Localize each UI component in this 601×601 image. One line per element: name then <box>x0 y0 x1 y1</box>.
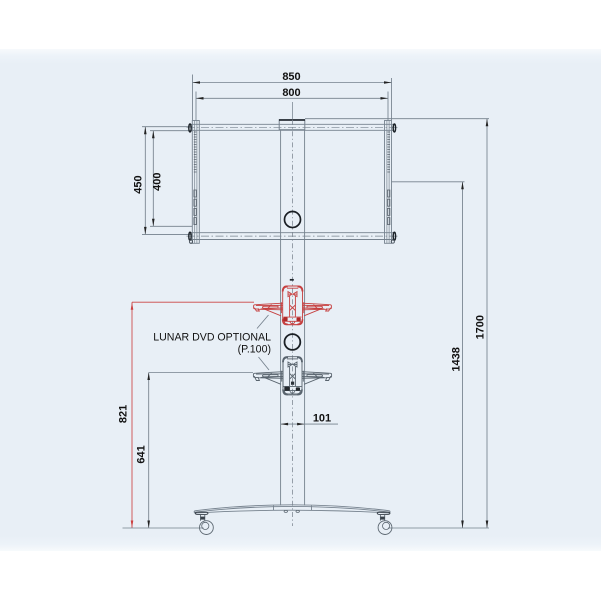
svg-text:(P.100): (P.100) <box>238 343 271 355</box>
svg-text:1700: 1700 <box>475 315 487 339</box>
svg-text:LUNAR DVD OPTIONAL: LUNAR DVD OPTIONAL <box>153 332 271 344</box>
svg-text:850: 850 <box>282 71 300 83</box>
svg-text:101: 101 <box>313 413 331 425</box>
svg-text:800: 800 <box>282 87 300 99</box>
svg-text:450: 450 <box>133 175 145 193</box>
svg-text:1438: 1438 <box>451 347 463 371</box>
svg-text:400: 400 <box>152 173 164 191</box>
svg-text:821: 821 <box>118 405 130 423</box>
svg-text:641: 641 <box>136 445 148 463</box>
